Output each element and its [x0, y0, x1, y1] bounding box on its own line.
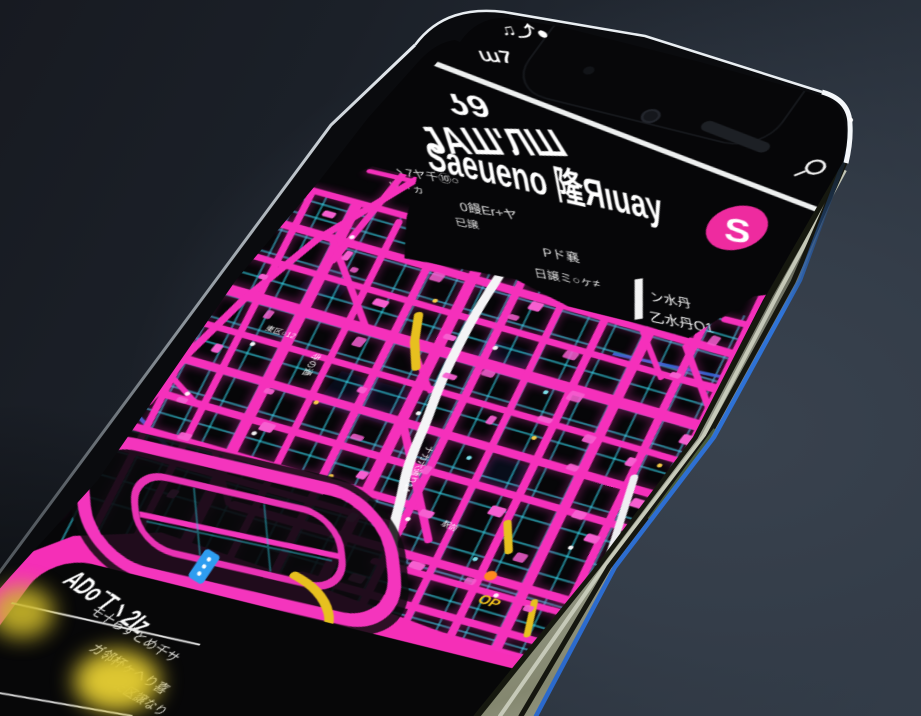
svg-text:S: S: [723, 210, 752, 251]
